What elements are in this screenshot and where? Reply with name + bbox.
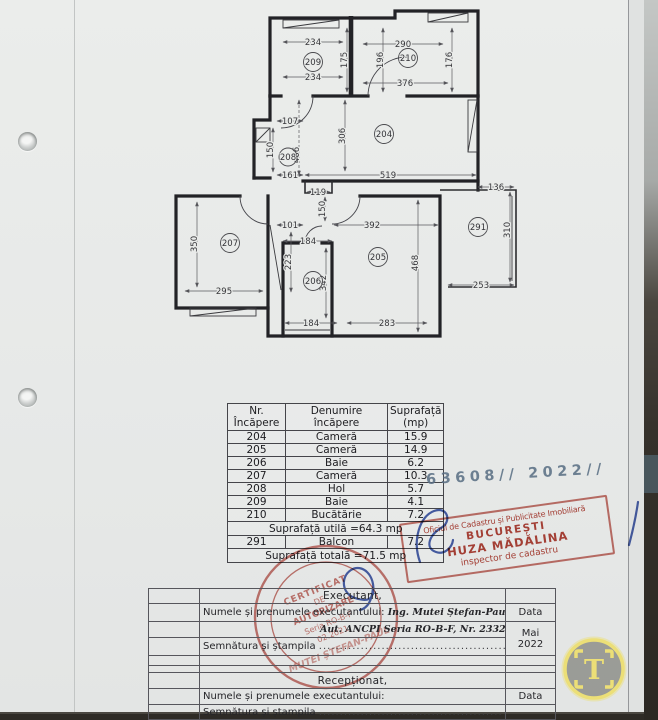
executant-name-cell: Numele și prenumele executantului: Ing. … bbox=[200, 604, 506, 622]
spacer-row bbox=[149, 656, 556, 666]
reception-signature-cell: Semnătura și ștampila ..................… bbox=[200, 705, 506, 720]
scanned-page: 234 290 234 376 107 161 519 136 119 101 … bbox=[0, 0, 658, 720]
empty-cell bbox=[149, 638, 200, 656]
executant-signature-cell: Semnătura și ștampila ..................… bbox=[200, 638, 506, 656]
empty-cell bbox=[149, 673, 200, 689]
executant-name-row: Numele și prenumele executantului: Ing. … bbox=[149, 604, 556, 622]
cell-area: 4.1 bbox=[388, 496, 444, 509]
header-nr-line1: Nr. bbox=[230, 405, 283, 417]
header-nr-line2: Încăpere bbox=[230, 417, 283, 429]
date-year: 2022 bbox=[509, 639, 552, 650]
empty-cell bbox=[506, 589, 556, 604]
header-suprafata: Suprafață (mp) bbox=[388, 404, 444, 431]
cell-nr: 205 bbox=[228, 444, 286, 457]
reception-title: Recepționat, bbox=[200, 673, 506, 689]
cell-nr: 206 bbox=[228, 457, 286, 470]
cell-name: Baie bbox=[286, 457, 388, 470]
table-row: 206Baie6.2 bbox=[228, 457, 444, 470]
table-row: 210Bucătărie7.2 bbox=[228, 509, 444, 522]
executant-name-value: Ing. Mutei Ștefan-Paul bbox=[388, 607, 506, 618]
empty-cell bbox=[149, 589, 200, 604]
date-label: Data bbox=[506, 604, 556, 622]
date-month: Mai bbox=[509, 628, 552, 639]
cell-nr: 209 bbox=[228, 496, 286, 509]
date-label: Data bbox=[506, 689, 556, 705]
table-row: 207Cameră10.3 bbox=[228, 470, 444, 483]
cell-name: Hol bbox=[286, 483, 388, 496]
empty-cell bbox=[200, 666, 506, 673]
reception-title-row: Recepționat, bbox=[149, 673, 556, 689]
authorization-text: Aut. ANCPI Seria RO-B-F, Nr. 2332 bbox=[200, 622, 506, 638]
empty-cell bbox=[200, 656, 506, 666]
executant-name-label: Numele și prenumele executantului: bbox=[203, 607, 385, 618]
punch-hole-bottom bbox=[18, 388, 37, 407]
signature-dotted-line: ........................................… bbox=[319, 707, 503, 718]
reception-signature-row: Semnătura și ștampila ..................… bbox=[149, 705, 556, 720]
punch-hole-top bbox=[18, 132, 37, 151]
header-nr: Nr. Încăpere bbox=[228, 404, 286, 431]
desk-blue-detail bbox=[644, 455, 658, 493]
cell-nr: 208 bbox=[228, 483, 286, 496]
spacer-row bbox=[149, 666, 556, 673]
table-row: 204Cameră15.9 bbox=[228, 431, 444, 444]
signature-label: Semnătura și ștampila bbox=[203, 707, 316, 718]
signature-label: Semnătura și ștampila bbox=[203, 641, 316, 652]
header-suprafata-line2: (mp) bbox=[390, 417, 441, 429]
watermark-letter: T bbox=[584, 655, 604, 686]
table-row: 205Cameră14.9 bbox=[228, 444, 444, 457]
header-denumire: Denumire încăpere bbox=[286, 404, 388, 431]
table-row: 209Baie4.1 bbox=[228, 496, 444, 509]
empty-cell bbox=[149, 666, 200, 673]
cell-area: 14.9 bbox=[388, 444, 444, 457]
empty-cell bbox=[149, 689, 200, 705]
authorization-row: Aut. ANCPI Seria RO-B-F, Nr. 2332 Mai 20… bbox=[149, 622, 556, 638]
cell-nr: 207 bbox=[228, 470, 286, 483]
empty-cell bbox=[149, 705, 200, 720]
empty-cell bbox=[506, 656, 556, 666]
executant-title: Executant, bbox=[200, 589, 506, 604]
empty-cell bbox=[506, 666, 556, 673]
cell-name: Baie bbox=[286, 496, 388, 509]
executant-title-row: Executant, bbox=[149, 589, 556, 604]
desk-background bbox=[644, 0, 658, 720]
header-suprafata-line1: Suprafață bbox=[390, 405, 441, 417]
reception-name-label: Numele și prenumele executantului: bbox=[200, 689, 506, 705]
reception-name-row: Numele și prenumele executantului: Data bbox=[149, 689, 556, 705]
scanner-watermark: T bbox=[561, 636, 627, 702]
cell-nr: 204 bbox=[228, 431, 286, 444]
empty-cell bbox=[506, 673, 556, 689]
signature-table: Executant, Numele și prenumele executant… bbox=[148, 588, 556, 720]
cell-name: Cameră bbox=[286, 470, 388, 483]
date-value-cell: Mai 2022 bbox=[506, 622, 556, 656]
cell-area: 15.9 bbox=[388, 431, 444, 444]
empty-cell bbox=[149, 656, 200, 666]
cell-name: Cameră bbox=[286, 431, 388, 444]
executant-signature-row: Semnătura și ștampila ..................… bbox=[149, 638, 556, 656]
empty-cell bbox=[506, 705, 556, 720]
table-header-row: Nr. Încăpere Denumire încăpere Suprafață… bbox=[228, 404, 444, 431]
cell-name: Cameră bbox=[286, 444, 388, 457]
cell-name: Bucătărie bbox=[286, 509, 388, 522]
right-scan-edge-line bbox=[628, 0, 629, 712]
left-fold-line bbox=[74, 0, 75, 712]
empty-cell bbox=[149, 604, 200, 622]
cell-nr: 210 bbox=[228, 509, 286, 522]
cell-area: 6.2 bbox=[388, 457, 444, 470]
empty-cell bbox=[149, 622, 200, 638]
table-row: 208Hol5.7 bbox=[228, 483, 444, 496]
signature-dotted-line: ........................................… bbox=[319, 641, 506, 652]
